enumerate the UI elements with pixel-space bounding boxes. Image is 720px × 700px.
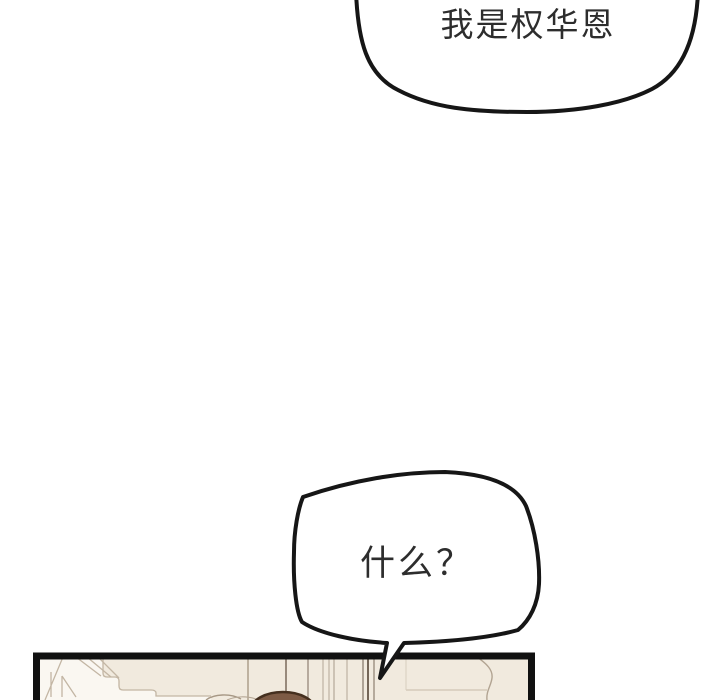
comic-page: 我是权华恩 什么？ [0,0,720,700]
top-bubble-text: 我是权华恩 [368,6,688,44]
bottom-comic-panel [37,656,532,700]
what-bubble-text: 什么？ [297,544,537,584]
comic-art [0,0,720,700]
